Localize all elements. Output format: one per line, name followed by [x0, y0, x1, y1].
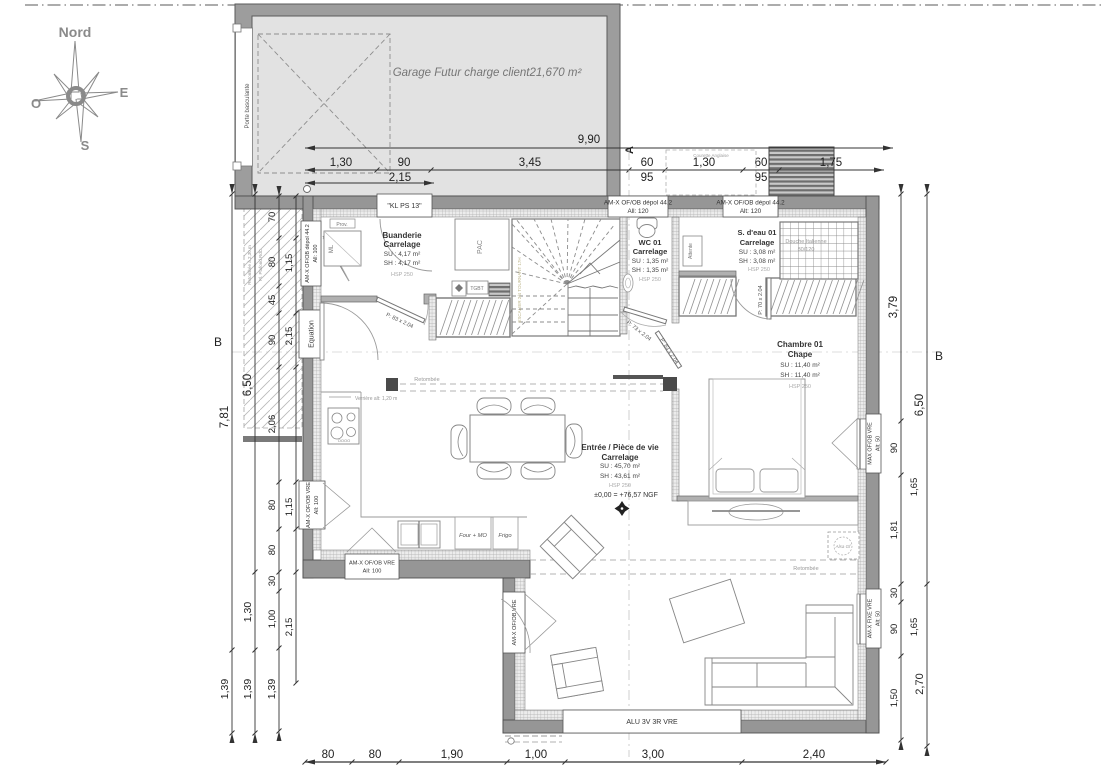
svg-text:90: 90	[267, 335, 278, 346]
svg-text:9,90: 9,90	[578, 134, 600, 146]
svg-text:7,81: 7,81	[219, 406, 231, 428]
svg-text:HSP 250: HSP 250	[748, 267, 770, 273]
svg-text:90: 90	[889, 624, 900, 635]
svg-text:Chape: Chape	[788, 350, 813, 359]
svg-text:Four + MO: Four + MO	[459, 533, 487, 539]
svg-text:Carrelage: Carrelage	[633, 247, 668, 256]
svg-text:6,50: 6,50	[242, 374, 254, 396]
svg-text:Porte basculante: Porte basculante	[245, 83, 251, 129]
svg-text:Entrée / Pièce de vie: Entrée / Pièce de vie	[581, 443, 659, 452]
svg-text:Prov.: Prov.	[336, 222, 347, 228]
svg-text:Alt: 120: Alt: 120	[740, 208, 762, 215]
svg-text:1,30: 1,30	[693, 157, 715, 169]
svg-text:Carrelage: Carrelage	[602, 453, 639, 462]
svg-text:Attente: Attente	[688, 243, 694, 259]
svg-text:80: 80	[322, 749, 335, 761]
svg-text:TGBT: TGBT	[470, 286, 483, 292]
svg-text:HSP 250: HSP 250	[789, 384, 811, 390]
svg-text:SH : 1,35 m²: SH : 1,35 m²	[632, 267, 669, 274]
svg-text:Carrelage: Carrelage	[740, 238, 775, 247]
svg-text:ALU 3V 3R VRE: ALU 3V 3R VRE	[626, 719, 678, 726]
svg-text:1,30: 1,30	[242, 602, 254, 623]
svg-text:Courette Anglaise: Courette Anglaise	[693, 153, 729, 158]
svg-text:1,00: 1,00	[525, 749, 547, 761]
svg-text:SU : 1,35 m²: SU : 1,35 m²	[632, 258, 669, 265]
svg-text:AM-X OF/OB VRE: AM-X OF/OB VRE	[349, 561, 395, 567]
svg-text:60: 60	[641, 157, 654, 169]
svg-text:2,06: 2,06	[267, 415, 278, 434]
svg-text:SU : 11,40 m²: SU : 11,40 m²	[780, 362, 820, 369]
svg-text:AM-X OF/OB VRE: AM-X OF/OB VRE	[512, 599, 518, 645]
svg-text:2,15: 2,15	[284, 327, 295, 346]
svg-text:B: B	[935, 349, 943, 363]
svg-text:Alt: 50: Alt: 50	[876, 611, 882, 626]
svg-text:SU : 45,70 m²: SU : 45,70 m²	[600, 463, 641, 470]
svg-text:HSP 250: HSP 250	[609, 483, 631, 489]
svg-text:"KL PS 13": "KL PS 13"	[387, 203, 422, 210]
svg-text:S: S	[81, 138, 90, 153]
svg-text:3,45: 3,45	[519, 157, 541, 169]
svg-text:SH : 3,08 m²: SH : 3,08 m²	[739, 258, 776, 265]
svg-text:E: E	[120, 85, 129, 100]
svg-text:1,81: 1,81	[889, 521, 900, 540]
svg-text:S. d'eau 01: S. d'eau 01	[738, 228, 777, 237]
svg-text:1,15: 1,15	[284, 254, 295, 273]
svg-text:SH : 11,40 m²: SH : 11,40 m²	[780, 372, 820, 379]
svg-text:AM-X OF/OB dépol 44.2: AM-X OF/OB dépol 44.2	[305, 224, 311, 282]
svg-text:Garage Futur charge client21,6: Garage Futur charge client21,670 m²	[393, 67, 583, 79]
svg-text:B: B	[214, 335, 222, 349]
svg-text:95: 95	[755, 172, 768, 184]
svg-text:1,90: 1,90	[441, 749, 463, 761]
svg-text:Retombée: Retombée	[414, 377, 439, 383]
svg-text:1,65: 1,65	[909, 478, 920, 497]
svg-text:WC 01: WC 01	[639, 238, 662, 247]
svg-text:1,39: 1,39	[266, 679, 278, 700]
svg-text:80: 80	[267, 500, 278, 511]
svg-text:1,15: 1,15	[284, 498, 295, 517]
svg-text:Pl. Plafond RdC: Pl. Plafond RdC	[258, 248, 263, 281]
svg-text:HSP 250: HSP 250	[639, 277, 661, 283]
svg-text:PAC: PAC	[477, 240, 484, 254]
svg-text:ML: ML	[329, 244, 335, 253]
svg-text:AM-X OF/OB dépol 44.2: AM-X OF/OB dépol 44.2	[604, 200, 673, 207]
svg-text:90: 90	[889, 443, 900, 454]
svg-text:2,70: 2,70	[914, 673, 926, 694]
svg-text:All: 100: All: 100	[313, 245, 319, 263]
svg-text:AM-X FIXE VRE: AM-X FIXE VRE	[867, 598, 873, 638]
svg-text:80: 80	[267, 257, 278, 268]
svg-text:Equation: Equation	[308, 320, 315, 348]
svg-text:3,79: 3,79	[888, 296, 900, 318]
svg-text:Verrière alt: 1,20 m: Verrière alt: 1,20 m	[355, 396, 397, 402]
svg-text:Alsa Gf: Alsa Gf	[835, 544, 852, 549]
svg-text:2,15: 2,15	[389, 172, 411, 184]
svg-text:2,15: 2,15	[284, 618, 295, 637]
svg-text:Buanderie: Buanderie	[382, 231, 422, 240]
svg-text:±0,00 = +76,57 NGF: ±0,00 = +76,57 NGF	[594, 492, 658, 499]
svg-text:3,00: 3,00	[642, 749, 664, 761]
svg-text:70: 70	[267, 212, 278, 223]
svg-text:90: 90	[398, 157, 411, 169]
svg-text:80: 80	[267, 545, 278, 556]
svg-text:Frigo: Frigo	[498, 533, 512, 539]
svg-text:1,00: 1,00	[267, 610, 278, 629]
svg-text:80: 80	[369, 749, 382, 761]
svg-text:All: 100: All: 100	[314, 496, 320, 515]
svg-text:Carrelage: Carrelage	[384, 240, 421, 249]
svg-text:30: 30	[889, 588, 900, 599]
svg-text:All: 120: All: 120	[627, 208, 649, 215]
svg-text:60: 60	[755, 157, 768, 169]
svg-text:AM-X OF/OB dépol 44.2: AM-X OF/OB dépol 44.2	[716, 200, 785, 207]
svg-text:45: 45	[267, 295, 278, 306]
svg-text:Alt: 50: Alt: 50	[876, 436, 882, 451]
svg-text:All: 100: All: 100	[363, 568, 382, 574]
svg-text:AM-X OF/OB VRE: AM-X OF/OB VRE	[306, 482, 312, 528]
svg-text:Nord: Nord	[59, 24, 92, 40]
svg-text:O: O	[31, 96, 41, 111]
svg-text:1,39: 1,39	[242, 679, 254, 700]
svg-text:1,30: 1,30	[330, 157, 352, 169]
svg-text:Chambre 01: Chambre 01	[777, 340, 823, 349]
svg-text:Douche Italienne: Douche Italienne	[785, 239, 826, 245]
svg-text:SU : 4,17 m²: SU : 4,17 m²	[384, 251, 421, 258]
svg-text:6,50: 6,50	[914, 394, 926, 416]
svg-text:SH : 43,61 m²: SH : 43,61 m²	[600, 473, 641, 480]
svg-text:ESCALIER 2/4 TOURNANT 17H: ESCALIER 2/4 TOURNANT 17H	[517, 257, 522, 322]
svg-text:80/120: 80/120	[798, 247, 815, 253]
svg-text:SH : 4,17 m²: SH : 4,17 m²	[384, 260, 421, 267]
svg-text:1,50: 1,50	[889, 689, 900, 708]
svg-text:A: A	[624, 146, 636, 154]
svg-text:SU : 3,08 m²: SU : 3,08 m²	[739, 249, 776, 256]
svg-text:1,75: 1,75	[820, 157, 842, 169]
svg-text:Retombée à 2,30 m: Retombée à 2,30 m	[247, 245, 252, 285]
svg-text:P: 70 x 2.04: P: 70 x 2.04	[758, 285, 764, 314]
svg-text:MAX OF/OB VRE: MAX OF/OB VRE	[867, 422, 873, 465]
svg-text:OOOO: OOOO	[338, 438, 350, 443]
svg-text:Retombée: Retombée	[793, 566, 818, 572]
svg-text:95: 95	[641, 172, 654, 184]
svg-text:30: 30	[267, 576, 278, 587]
svg-text:1,39: 1,39	[219, 679, 231, 700]
svg-text:HSP 250: HSP 250	[391, 272, 413, 278]
svg-text:1,65: 1,65	[909, 618, 920, 637]
svg-text:2,40: 2,40	[803, 749, 825, 761]
